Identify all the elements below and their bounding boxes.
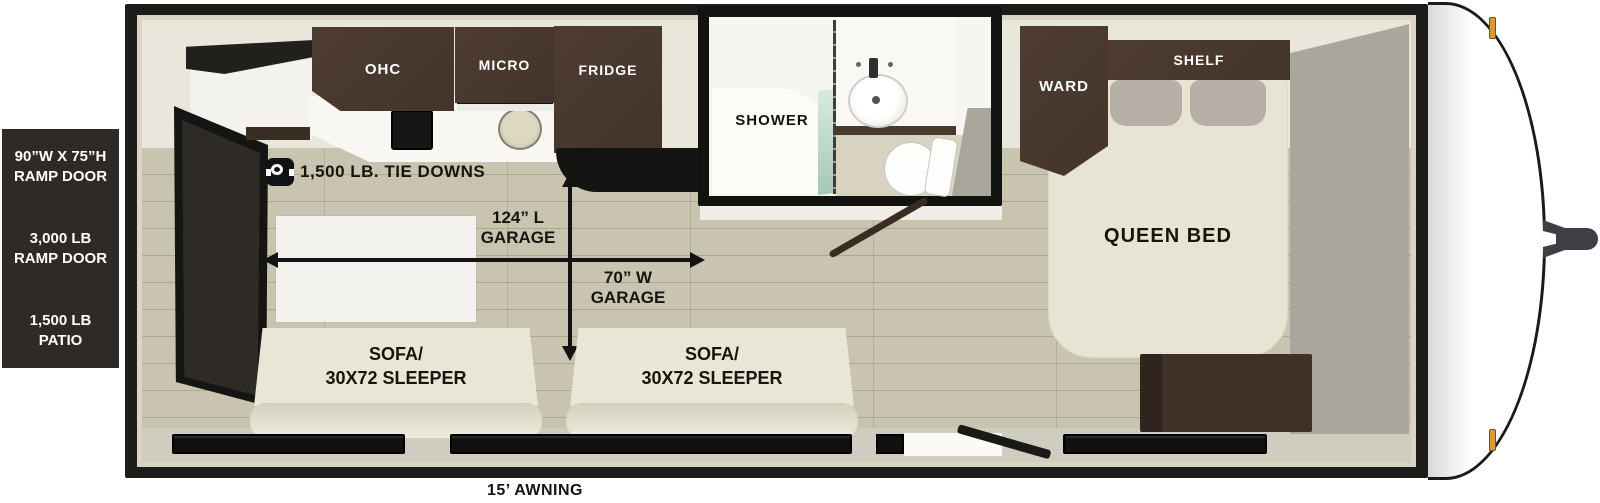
overhead-cabinet: OHC xyxy=(312,27,454,111)
faucet-handle xyxy=(888,62,893,67)
awning-label: 15’ AWNING xyxy=(440,481,630,501)
tie-downs-label: 1,500 LB. TIE DOWNS xyxy=(300,161,560,182)
micro-label: MICRO xyxy=(479,57,531,73)
vanity-cabinet-edge xyxy=(836,126,956,135)
sink-drain xyxy=(872,96,880,104)
window xyxy=(172,434,405,454)
shelf-label: SHELF xyxy=(1174,52,1225,68)
pillow xyxy=(1190,80,1266,126)
ward-label: WARD xyxy=(1039,78,1089,95)
ramp-door-weight-label: 3,000 LB RAMP DOOR xyxy=(4,229,117,268)
shelf: SHELF xyxy=(1108,40,1290,80)
kitchen-counter-edge xyxy=(246,127,310,140)
garage-width-label: 70” W GARAGE xyxy=(578,268,678,307)
sofa-2-seat xyxy=(566,403,858,438)
sofa-1-seat xyxy=(250,403,542,438)
front-cap xyxy=(1428,2,1546,480)
hitch-coupler xyxy=(1560,228,1598,250)
queen-bed-label: QUEEN BED xyxy=(1058,224,1278,249)
cooktop xyxy=(391,110,433,150)
window xyxy=(1063,434,1267,454)
garage-length-arrow xyxy=(276,258,692,262)
sofa-sleeper-1: SOFA/ 30X72 SLEEPER xyxy=(254,328,538,406)
shower-label: SHOWER xyxy=(710,112,834,131)
ramp-door-size-label: 90”W X 75”H RAMP DOOR xyxy=(4,147,117,186)
bathroom-faucet xyxy=(869,58,878,78)
wardrobe: WARD xyxy=(1020,26,1108,176)
sofa-sleeper-2: SOFA/ 30X72 SLEEPER xyxy=(570,328,854,406)
shower-pan xyxy=(712,88,834,194)
garage-floor-mat xyxy=(276,216,476,322)
refrigerator: FRIDGE xyxy=(554,26,662,153)
arrow-right-head xyxy=(690,252,705,268)
exterior-spec-panel: 90”W X 75”H RAMP DOOR 3,000 LB RAMP DOOR… xyxy=(2,129,119,368)
entry-door-jamb xyxy=(876,434,904,454)
arrow-up-head xyxy=(562,172,578,187)
bathroom-front-wall xyxy=(700,206,1002,220)
faucet-handle xyxy=(856,62,861,67)
marker-light xyxy=(1489,17,1496,39)
garage-length-label: 124” L GARAGE xyxy=(468,208,568,247)
patio-weight-label: 1,500 LB PATIO xyxy=(4,311,117,350)
ohc-label: OHC xyxy=(365,61,401,78)
fridge-label: FRIDGE xyxy=(579,62,638,78)
garage-width-arrow xyxy=(568,186,572,348)
tie-down-icon xyxy=(266,158,294,186)
marker-light xyxy=(1489,429,1496,451)
bed-foot-dresser xyxy=(1140,354,1312,432)
arrow-left-head xyxy=(263,252,278,268)
microwave: MICRO xyxy=(455,27,554,103)
floorplan-canvas: 90”W X 75”H RAMP DOOR 3,000 LB RAMP DOOR… xyxy=(0,0,1600,503)
open-ramp-door-panel xyxy=(182,120,260,396)
kitchen-sink xyxy=(498,108,542,150)
window xyxy=(450,434,852,454)
shower-glass xyxy=(818,89,834,195)
pillow xyxy=(1110,80,1182,126)
